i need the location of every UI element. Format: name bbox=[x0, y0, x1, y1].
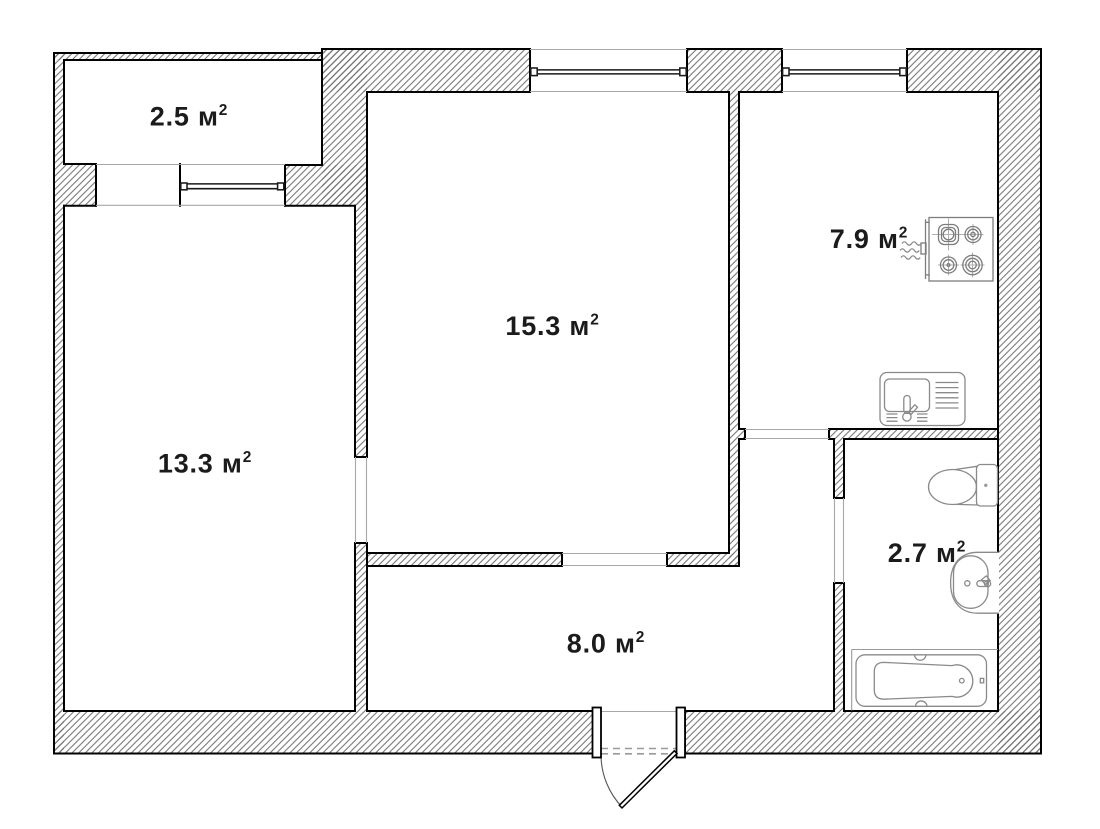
svg-text:7.9 м2: 7.9 м2 bbox=[830, 224, 908, 254]
svg-text:13.3 м2: 13.3 м2 bbox=[158, 449, 252, 479]
svg-text:15.3 м2: 15.3 м2 bbox=[505, 311, 599, 341]
svg-text:2.5 м2: 2.5 м2 bbox=[150, 102, 228, 132]
svg-text:2.7 м2: 2.7 м2 bbox=[888, 538, 966, 568]
svg-text:8.0 м2: 8.0 м2 bbox=[567, 629, 645, 659]
